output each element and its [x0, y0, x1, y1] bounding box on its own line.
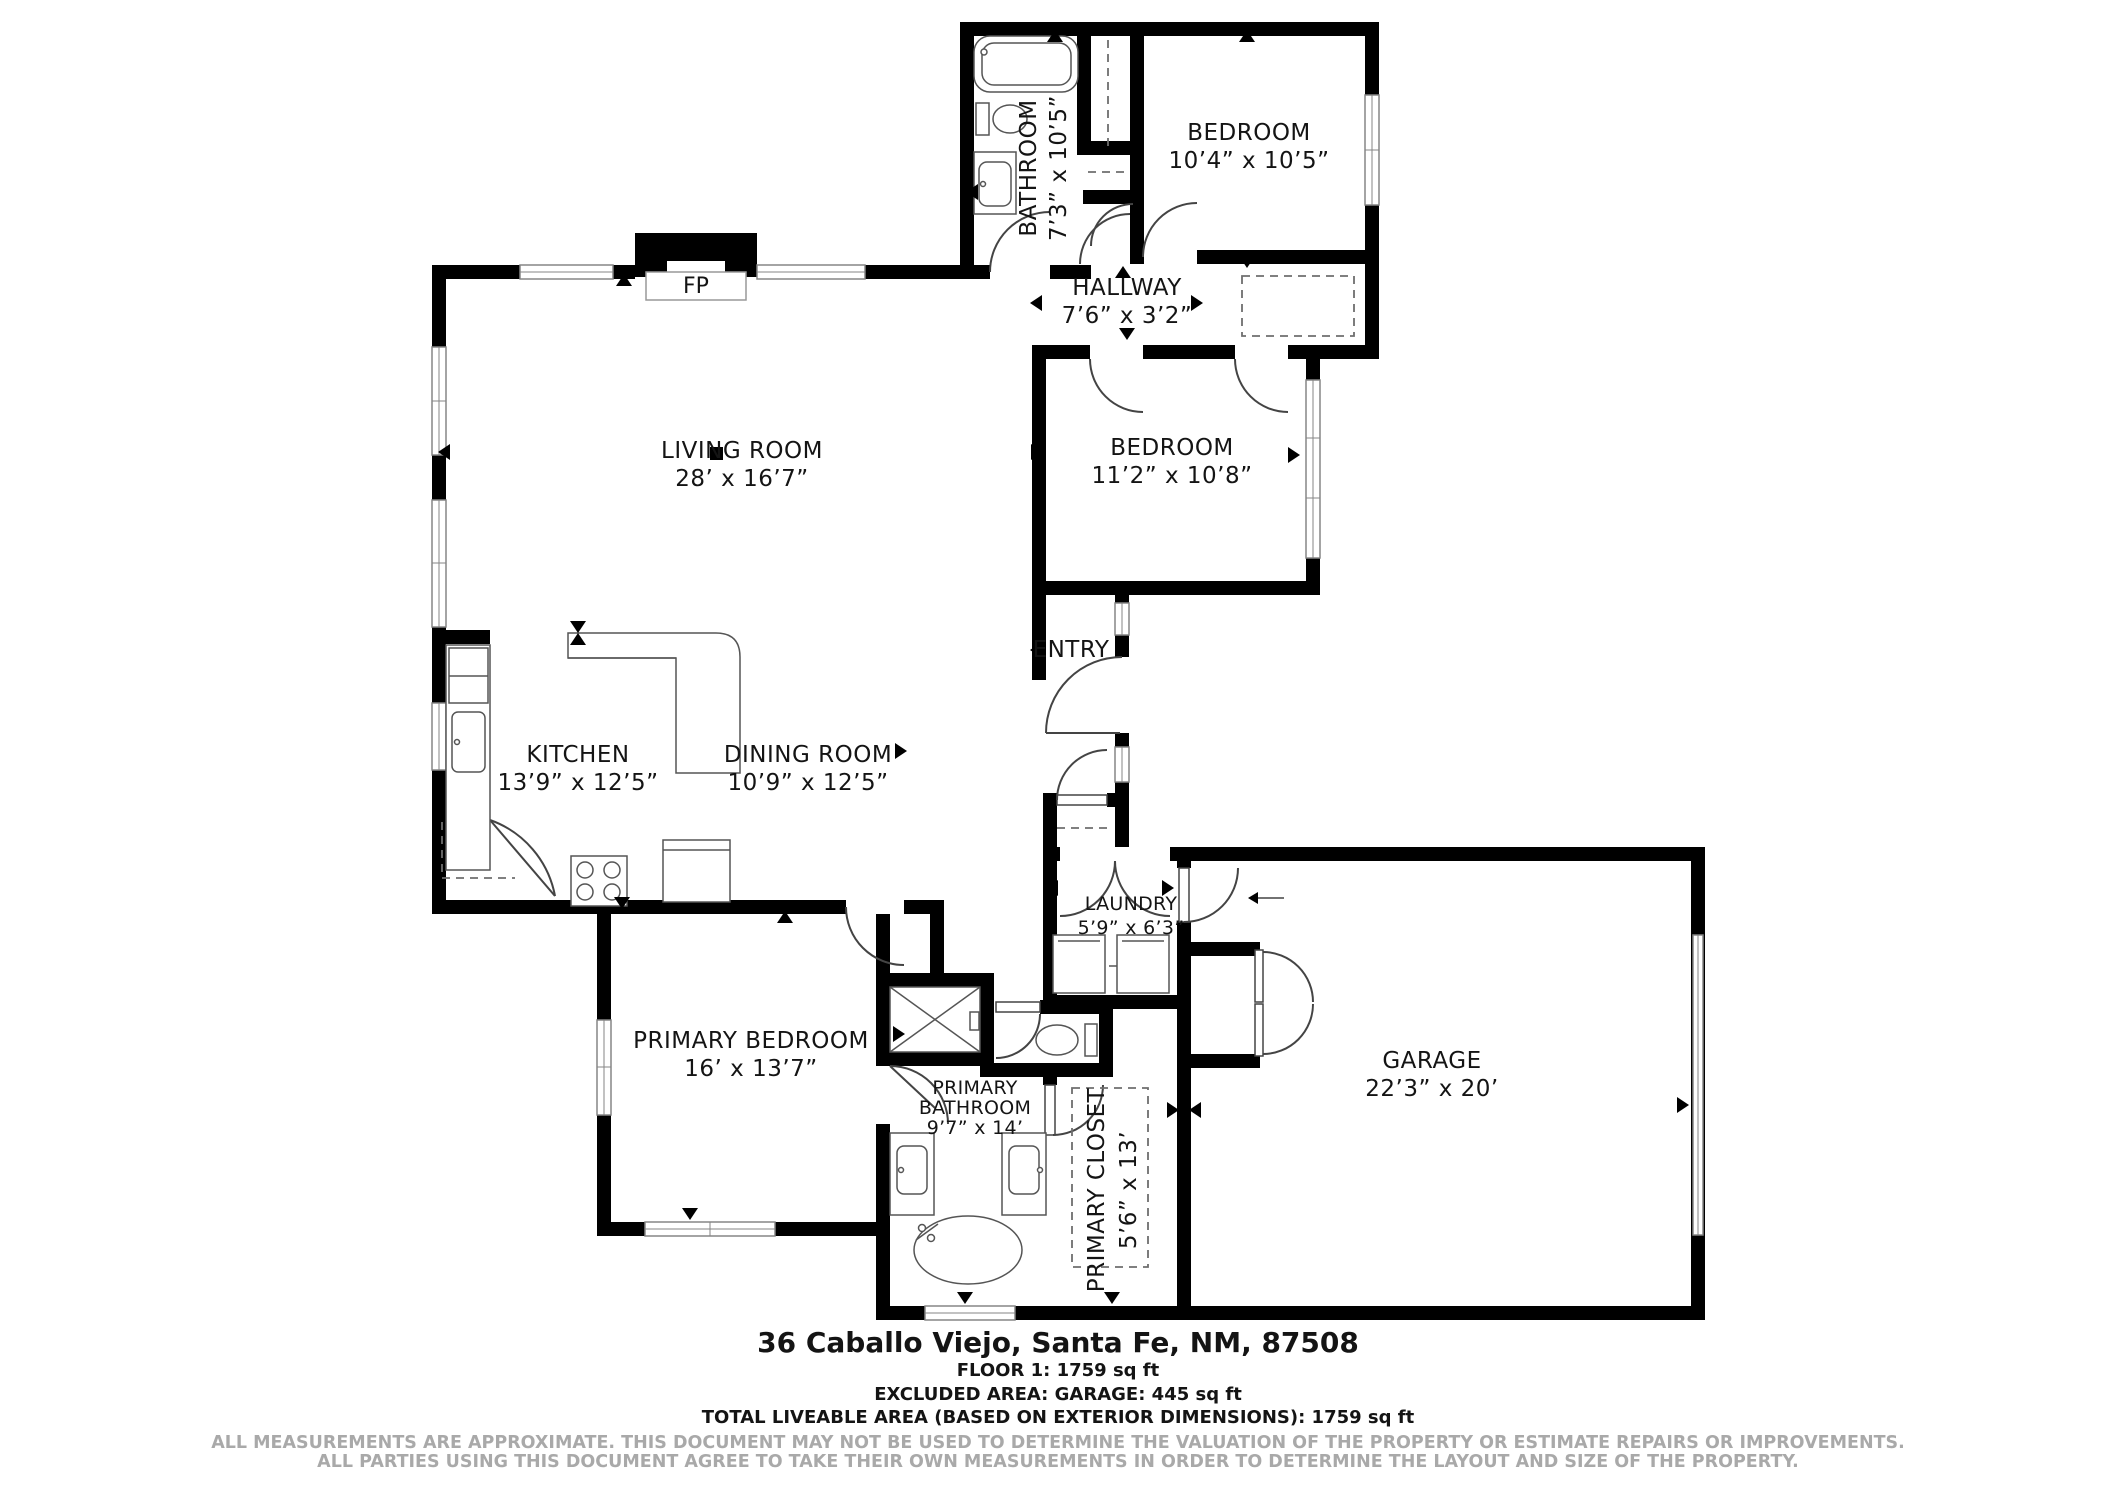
wall-segment [1043, 847, 1060, 861]
pantry-door-leaf [490, 820, 555, 896]
coat-closet-door-leaf [1057, 795, 1107, 805]
garage-entry-door-leaf [1179, 868, 1189, 922]
tub-filler [919, 1225, 926, 1232]
wall-segment [1043, 1063, 1057, 1085]
window [1115, 603, 1129, 635]
wc-door-arc [996, 1014, 1040, 1058]
wall-segment [960, 265, 990, 279]
bedroom-top-dims: 10’4” x 10’5” [1169, 148, 1330, 174]
wall-segment [597, 1115, 611, 1236]
wall-segment [775, 1222, 890, 1236]
primary-closet-dims: 5’6” x 13’ [1116, 1131, 1142, 1249]
wall-segment [1083, 141, 1130, 155]
tub-faucet [981, 49, 987, 55]
bedroom-middle-dims: 11’2” x 10’8” [1092, 463, 1253, 489]
wall-segment [1306, 345, 1320, 380]
wall-segment [432, 455, 446, 500]
shower-head [970, 1012, 979, 1030]
sink-right [1009, 1146, 1039, 1194]
bedroom-middle-label: BEDROOM [1110, 435, 1234, 461]
wall-segment [876, 973, 994, 987]
opening-marker [1248, 892, 1258, 904]
wall-segment [1177, 847, 1191, 868]
bedroom-middle-door-arc [1090, 359, 1143, 412]
primary-bedroom-door-arc [846, 907, 904, 965]
coat-closet-door-arc [1057, 750, 1107, 800]
fixture-shape [928, 1235, 935, 1242]
wall-segment [1083, 190, 1136, 204]
freestanding-tub [914, 1216, 1022, 1284]
garage-door [1693, 935, 1703, 1235]
garage-entry-door-arc [1184, 868, 1238, 922]
hallway-dims: 7’6” x 3’2” [1062, 303, 1193, 329]
wall-segment [1032, 581, 1320, 595]
total-area-text: TOTAL LIVEABLE AREA (BASED ON EXTERIOR D… [702, 1407, 1415, 1428]
living-room-label: LIVING ROOM [661, 438, 823, 464]
hall-bath-door-arc [1080, 214, 1130, 264]
wall-segment [597, 900, 611, 1020]
mech-closet-door-arc [1263, 1004, 1313, 1054]
wall-segment [960, 22, 974, 279]
wall-segment [1365, 264, 1379, 359]
dining-room-label: DINING ROOM [724, 742, 892, 768]
wall-segment [432, 265, 446, 347]
mech-closet-door-leaf [1255, 950, 1263, 1002]
footer: 36 Caballo Viejo, Santa Fe, NM, 87508 FL… [211, 1326, 1905, 1472]
wall-segment [876, 914, 890, 1066]
window [925, 1306, 1015, 1320]
window [1306, 380, 1320, 558]
primary-closet-label: PRIMARY CLOSET [1084, 1087, 1110, 1292]
wall-segment [1365, 22, 1379, 95]
opening-marker [957, 1292, 973, 1304]
window [757, 265, 865, 279]
opening-marker [1119, 328, 1135, 340]
opening-marker [682, 1208, 698, 1220]
garage-dims: 22’3” x 20’ [1365, 1076, 1498, 1102]
wall-segment [597, 1222, 645, 1236]
window [432, 500, 446, 627]
wall-segment [1143, 345, 1235, 359]
wall-segment [865, 265, 960, 279]
disclaimer-line-2: ALL PARTIES USING THIS DOCUMENT AGREE TO… [317, 1452, 1799, 1472]
dining-room-dims: 10’9” x 12’5” [728, 770, 889, 796]
excluded-area-text: EXCLUDED AREA: GARAGE: 445 sq ft [874, 1384, 1242, 1405]
bedroom-top-door-arc [1143, 203, 1197, 257]
address-title: 36 Caballo Viejo, Santa Fe, NM, 87508 [757, 1326, 1359, 1359]
wall-segment [1130, 250, 1143, 264]
opening-marker [570, 621, 586, 633]
wc-toilet-bowl [1036, 1025, 1078, 1055]
mech-closet-door-leaf [1255, 1004, 1263, 1056]
wall-segment [1187, 1054, 1260, 1068]
primary-bathroom-label-1: PRIMARY [932, 1077, 1017, 1099]
dryer [1117, 935, 1169, 993]
wall-segment [1077, 22, 1091, 155]
window [1365, 95, 1379, 205]
window [597, 1020, 611, 1115]
bedroom-closet-dash [1242, 276, 1354, 336]
floor-plan-page: FP BATHROOM 7’3” x 10’5” [0, 0, 2110, 1492]
fixture-shape [1038, 1168, 1043, 1173]
opening-marker [1030, 295, 1042, 311]
primary-bedroom-label: PRIMARY BEDROOM [633, 1028, 869, 1054]
wall-segment [1015, 1306, 1705, 1320]
wall-segment [1130, 22, 1144, 264]
window [432, 347, 446, 455]
wall-segment [1170, 847, 1705, 861]
sink-faucet [981, 182, 986, 187]
garage-label: GARAGE [1382, 1048, 1481, 1074]
opening-marker [1288, 447, 1300, 463]
laundry-label: LAUNDRY [1085, 893, 1178, 915]
wall-segment [1032, 345, 1046, 595]
disclaimer-line-1: ALL MEASUREMENTS ARE APPROXIMATE. THIS D… [211, 1433, 1905, 1453]
wall-segment [1197, 250, 1379, 264]
bathroom-label: BATHROOM [1016, 99, 1042, 236]
wc-door-leaf [996, 1002, 1040, 1012]
laundry-dims: 5’9” x 6’3” [1078, 917, 1185, 939]
bathtub-inner [982, 43, 1071, 85]
wall-segment [960, 22, 1379, 36]
window [645, 1222, 775, 1236]
primary-bathroom-label-2: BATHROOM [919, 1097, 1031, 1119]
floor-area-text: FLOOR 1: 1759 sq ft [957, 1360, 1160, 1381]
wall-segment [1115, 635, 1129, 657]
kitchen-dims: 13’9” x 12’5” [498, 770, 659, 796]
wall-segment [1177, 922, 1191, 1320]
fireplace-label: FP [683, 274, 709, 299]
wall-segment [890, 1052, 994, 1066]
fixture-shape [899, 1168, 904, 1173]
wall-segment [1115, 793, 1129, 847]
kitchen-label: KITCHEN [526, 742, 629, 768]
opening-marker [1104, 1292, 1120, 1304]
kitchen-faucet [455, 740, 460, 745]
wall-segment [432, 900, 846, 914]
wall-segment [1187, 942, 1260, 956]
opening-marker [895, 743, 907, 759]
opening-marker [1677, 1097, 1689, 1113]
washer [1053, 935, 1105, 993]
wall-segment [876, 1124, 890, 1320]
window [432, 703, 446, 770]
toilet-tank [976, 103, 989, 135]
living-room-dims: 28’ x 16’7” [675, 466, 808, 492]
bedroom-top-label: BEDROOM [1187, 120, 1311, 146]
wall-segment [904, 900, 944, 914]
bedroom-closet-door-arc [1235, 359, 1288, 412]
wc-toilet-tank [1085, 1024, 1097, 1056]
opening-marker [1191, 295, 1203, 311]
primary-closet-door-leaf [1045, 1085, 1055, 1135]
wall-segment [1115, 782, 1129, 793]
primary-bathroom-dims: 9’7” x 14’ [927, 1117, 1024, 1139]
floor-plan-drawing: FP BATHROOM 7’3” x 10’5” [0, 0, 2110, 1492]
hallway-label: HALLWAY [1072, 275, 1182, 301]
window [1115, 747, 1129, 782]
wall-segment [876, 1306, 925, 1320]
primary-bedroom-dims: 16’ x 13’7” [684, 1056, 817, 1082]
window [520, 265, 613, 279]
wall-segment [432, 770, 446, 914]
wall-segment [1115, 733, 1129, 747]
wall-segment [1115, 581, 1129, 603]
wall-segment [437, 630, 490, 644]
entry-label: ENTRY [1033, 637, 1110, 663]
mech-closet-door-arc [1263, 952, 1313, 1002]
front-door-arc [1046, 657, 1122, 733]
bathroom-dims: 7’3” x 10’5” [1046, 95, 1072, 241]
